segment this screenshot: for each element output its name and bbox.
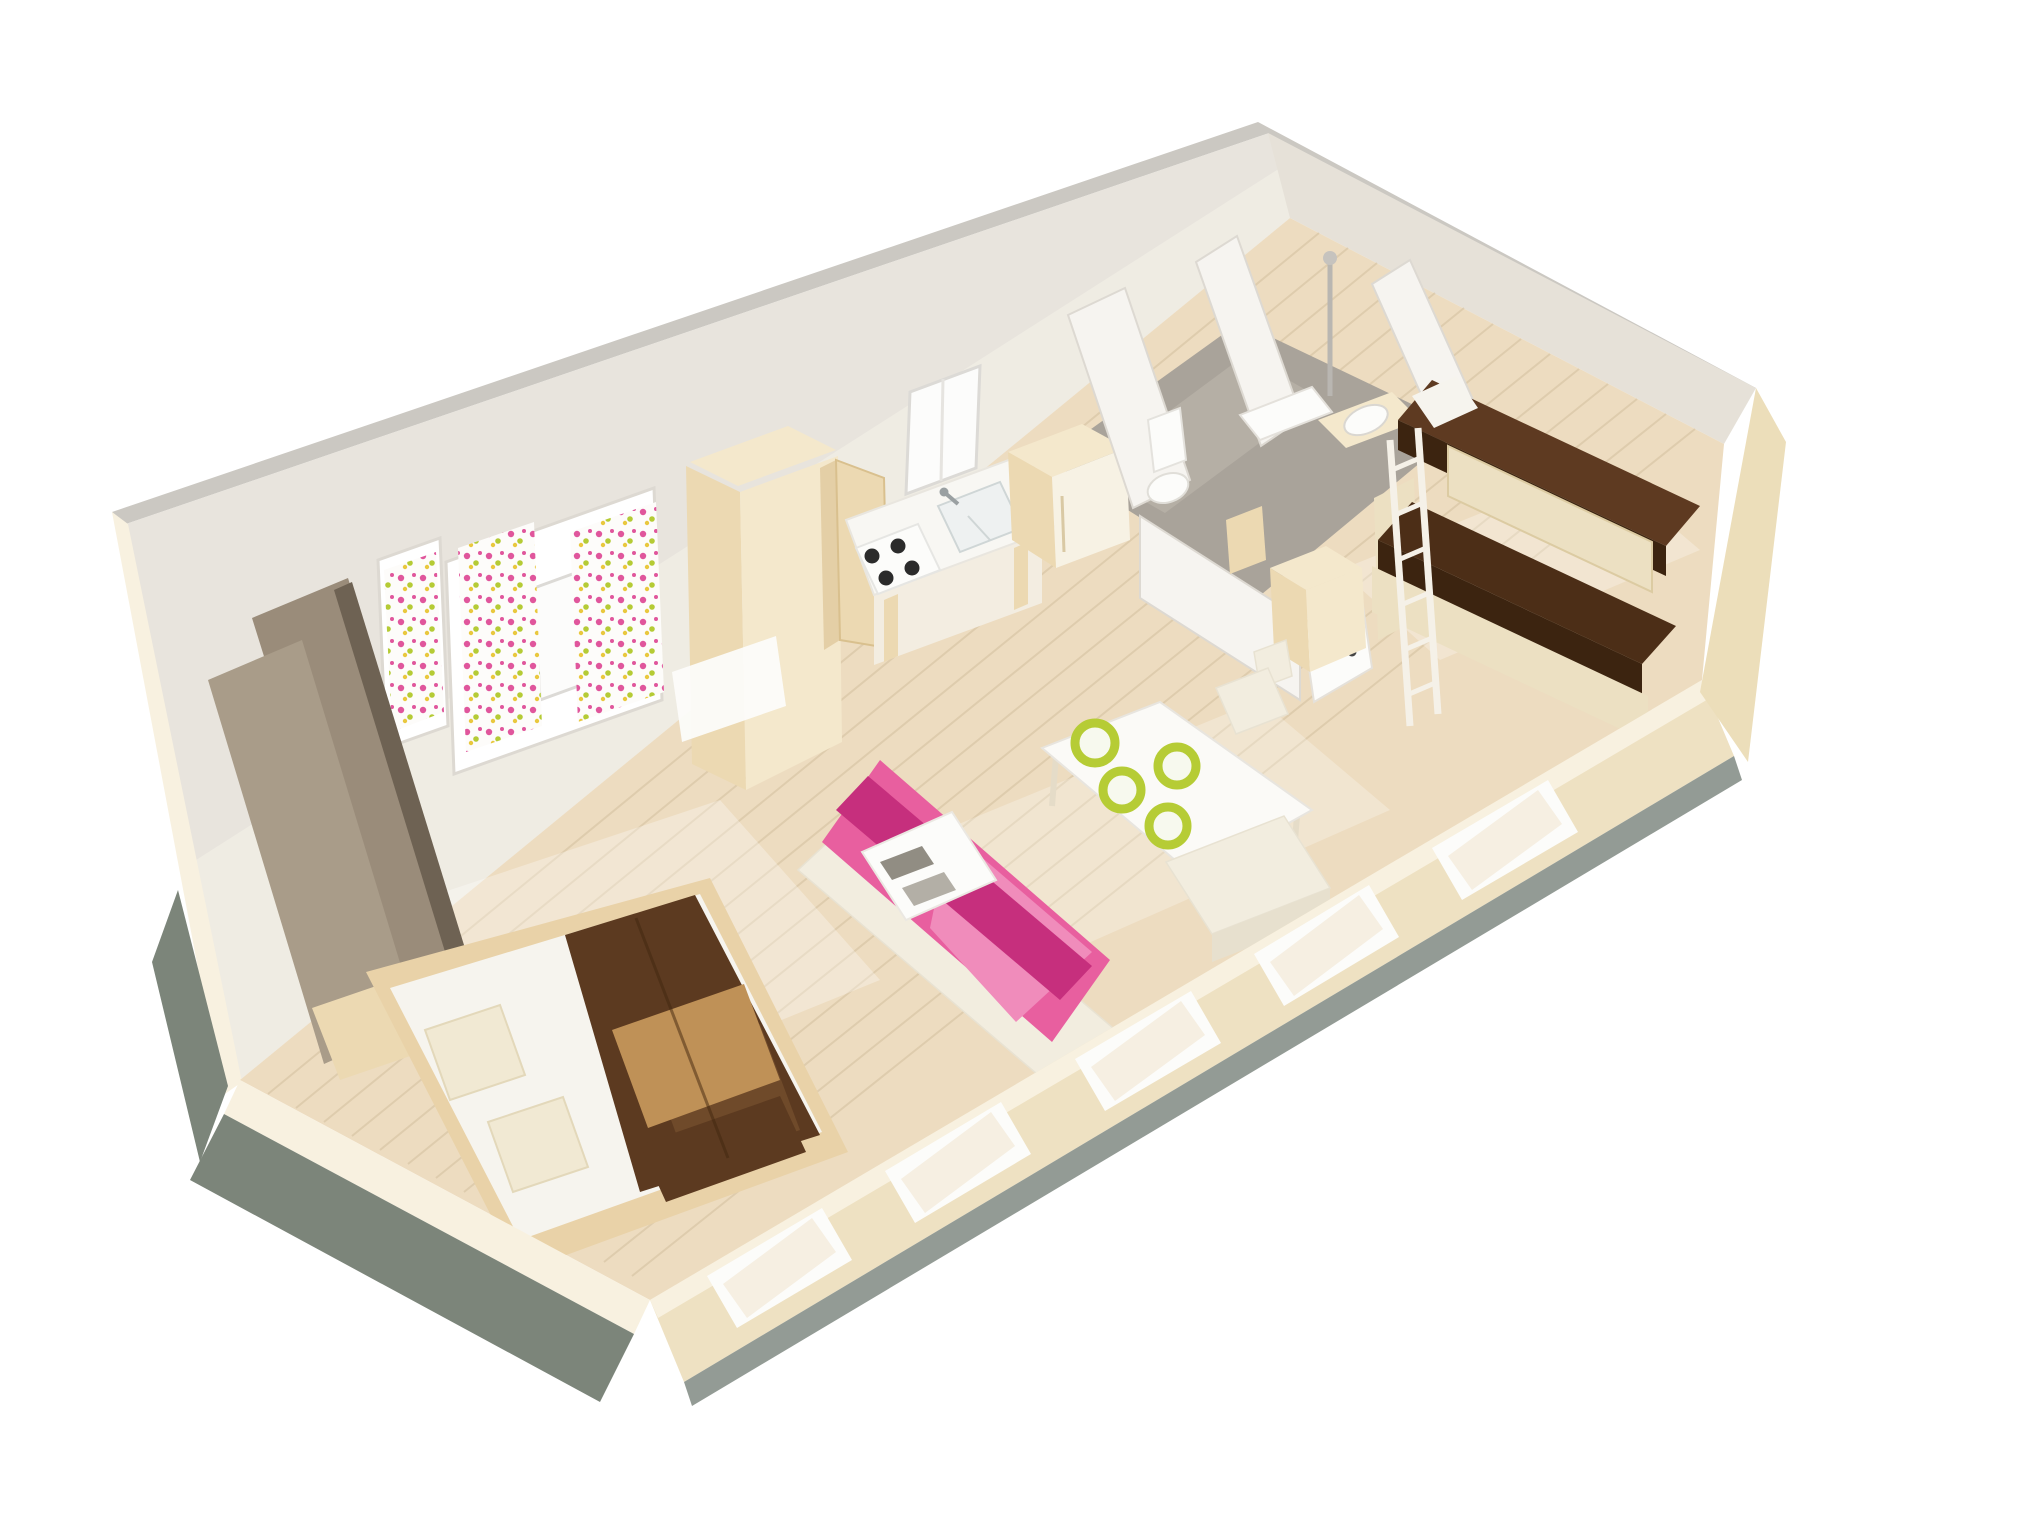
curtain-right-dots (570, 502, 664, 722)
side-curtain-dots (384, 552, 444, 732)
tall-cupboard-side (686, 466, 746, 790)
curtain-left-dots (458, 522, 542, 752)
hob-burner (905, 561, 920, 576)
floorplan-3d-render (0, 0, 2025, 1520)
shower-head (1323, 251, 1337, 265)
hob-burner (865, 549, 880, 564)
floorplan-canvas (0, 0, 2025, 1520)
plate-lime (1158, 747, 1196, 785)
counter-post-right (1014, 542, 1028, 610)
table-leg (1052, 756, 1056, 806)
kitchen-window-mullion (941, 379, 943, 481)
hob-burner (879, 571, 894, 586)
fridge-handle (1062, 496, 1064, 552)
plate-lime (1149, 807, 1187, 845)
toilet-tank (1148, 408, 1186, 472)
hob-burner (891, 539, 906, 554)
plate-lime (1075, 723, 1115, 763)
plate-lime (1103, 771, 1141, 809)
counter-post-left (884, 594, 898, 662)
